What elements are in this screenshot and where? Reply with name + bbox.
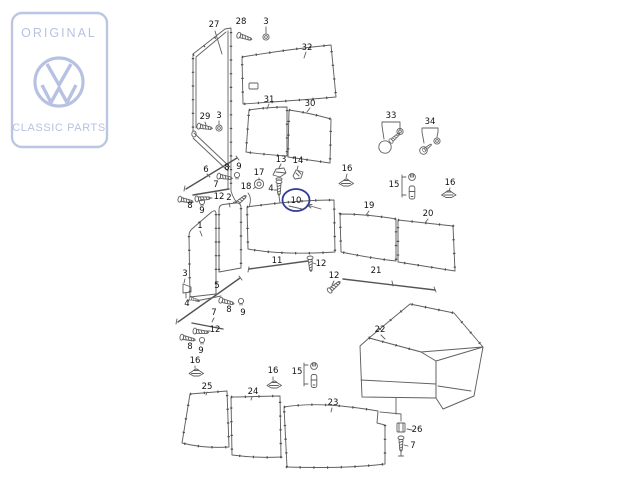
part-number-label-8-37[interactable]: 8 [226,305,231,315]
part-number-label-2-22[interactable]: 2 [226,193,231,203]
fastener-28-screw [236,32,253,43]
part-number-label-16-24[interactable]: 16 [342,164,353,174]
fastener-3-washer-left [216,121,222,131]
fastener-set-33 [379,122,403,153]
part-number-label-24-45[interactable]: 24 [248,387,259,397]
part-number-label-29-6[interactable]: 29 [200,112,211,122]
part-number-label-15-25[interactable]: 15 [389,180,400,190]
part-number-label-23-46[interactable]: 23 [328,398,339,408]
part-number-label-5-36[interactable]: 5 [214,281,219,291]
part-number-label-4-35[interactable]: 4 [184,299,189,309]
part-number-label-7-13[interactable]: 7 [213,180,218,190]
part-number-label-7-39[interactable]: 7 [211,308,216,318]
part-number-label-28-1[interactable]: 28 [236,17,247,27]
part-number-label-8-41[interactable]: 8 [187,342,192,352]
part-number-label-30-5[interactable]: 30 [305,99,316,109]
part-number-label-6-10[interactable]: 6 [203,165,208,175]
part-number-label-7-51[interactable]: 7 [410,441,415,451]
part-31-panel [246,104,287,156]
part-number-label-16-43[interactable]: 16 [190,356,201,366]
part-number-label-10-27[interactable]: 10 [291,196,302,206]
clip-16-upper-right [442,188,457,198]
part-number-label-20-29[interactable]: 20 [423,209,434,219]
exploded-parts-diagram: ORIGINAL CLASSIC PARTS [0,0,640,480]
part-number-label-9-38[interactable]: 9 [240,308,245,318]
fastener-29-screw [196,122,212,131]
part-number-label-31-4[interactable]: 31 [264,95,275,105]
part-22-wheel-arch-cover [360,304,483,421]
part-number-label-33-8[interactable]: 33 [386,111,397,121]
part-25-panel [182,391,229,447]
part-number-label-25-44[interactable]: 25 [202,382,213,392]
clip-16-lower-left [189,366,204,376]
bracket-15-lower [304,363,317,388]
parts-catalog-page: ORIGINAL CLASSIC PARTS [0,0,640,480]
fastener-set-34 [420,128,440,154]
part-number-label-15-48[interactable]: 15 [292,367,303,377]
fastener-3-washer-top [263,27,269,40]
part-number-label-3-2[interactable]: 3 [263,17,268,27]
part-20-panel [398,219,455,271]
part-number-label-14-18[interactable]: 14 [293,156,304,166]
clip-16-upper-left [339,174,354,186]
part-19-panel [340,211,396,261]
rod-21-and-screw-12 [326,279,436,294]
logo-classic-parts-text: CLASSIC PARTS [12,122,106,134]
part-24-panel [231,396,281,457]
part-number-label-9-16[interactable]: 9 [199,206,204,216]
part-10-panel [247,200,335,253]
part-30-panel [288,108,331,163]
part-number-label-12-14[interactable]: 12 [214,192,225,202]
part-number-label-21-33[interactable]: 21 [371,266,382,276]
part-2-panel [219,203,241,272]
part-number-label-8-15[interactable]: 8 [187,201,192,211]
classic-parts-logo: ORIGINAL CLASSIC PARTS [12,13,107,147]
clip-13 [273,164,286,177]
part-number-label-3-34[interactable]: 3 [182,269,187,279]
part-number-label-3-7[interactable]: 3 [216,111,221,121]
part-number-label-17-19[interactable]: 17 [254,168,265,178]
part-number-label-12-40[interactable]: 12 [210,325,221,335]
part-number-label-16-47[interactable]: 16 [268,366,279,376]
part-number-label-11-30[interactable]: 11 [272,256,283,266]
bracket-15-right [402,174,415,199]
logo-original-text: ORIGINAL [21,26,97,40]
part-number-label-19-28[interactable]: 19 [364,201,375,211]
part-number-label-18-20[interactable]: 18 [241,182,252,192]
fastener-7-screw-bottom [398,436,408,456]
part-number-label-22-49[interactable]: 22 [375,325,386,335]
fastener-4-screw-top [274,178,282,203]
part-23-panel [284,405,385,468]
vw-emblem-icon [35,58,83,106]
sleeve-26 [397,423,412,432]
clip-16-lower-mid [267,377,282,388]
clip-14 [293,166,303,179]
part-number-label-32-3[interactable]: 32 [302,43,313,53]
part-number-label-27-0[interactable]: 27 [209,20,220,30]
part-number-label-8-11[interactable]: 8 [224,163,229,173]
part-number-label-9-42[interactable]: 9 [198,346,203,356]
part-number-label-26-50[interactable]: 26 [412,425,423,435]
part-number-label-34-9[interactable]: 34 [425,117,436,127]
part-number-label-12-32[interactable]: 12 [329,271,340,281]
part-32-panel [242,45,336,104]
grommet-17 [253,178,263,189]
part-number-label-16-26[interactable]: 16 [445,178,456,188]
part-number-label-9-12[interactable]: 9 [236,162,241,172]
part-number-label-13-17[interactable]: 13 [276,155,287,165]
part-number-label-4-21[interactable]: 4 [268,184,273,194]
part-number-label-12-31[interactable]: 12 [316,259,327,269]
part-number-label-1-23[interactable]: 1 [197,221,202,231]
